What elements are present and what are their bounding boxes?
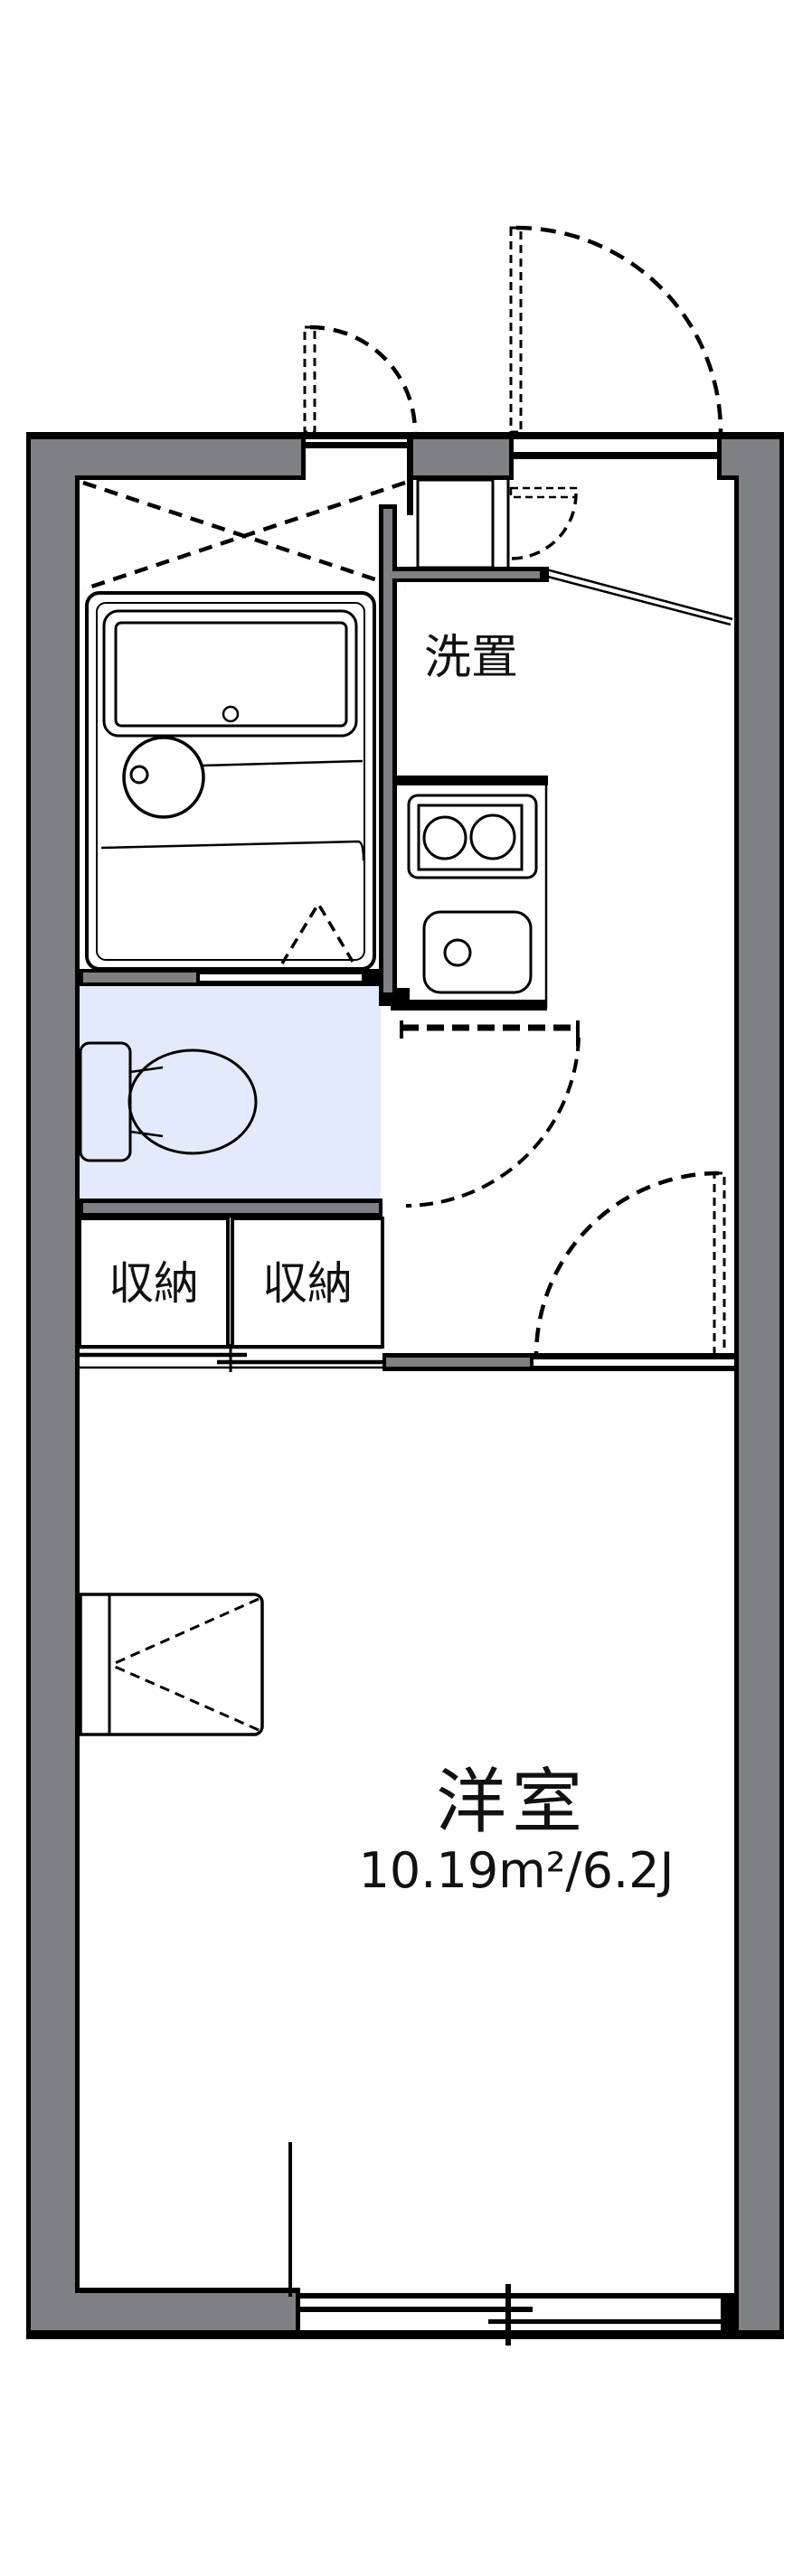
- basin-faucet: [131, 766, 147, 783]
- room-area-label: 10.19m²/6.2J: [359, 1842, 675, 1899]
- bottom-outer-wall-line: [26, 2330, 784, 2339]
- toilet-doorway-line: [197, 981, 365, 986]
- small-door-swing-icon: [305, 327, 415, 432]
- small-door-threshold: [304, 442, 412, 448]
- kitchen-counter-top-edge: [392, 776, 548, 785]
- room-name-label: 洋室: [436, 1762, 588, 1843]
- tub-drain: [223, 707, 238, 721]
- floors: [80, 981, 381, 1207]
- interior-small-door-swing-icon: [511, 488, 576, 559]
- desk-counter-icon: [80, 1594, 262, 1735]
- walls: [26, 432, 784, 2339]
- floor-plan-page: 洗置 収納 収納 洋室 10.19m²/6.2J: [0, 0, 812, 2576]
- storage-label-right: 収納: [262, 1257, 353, 1310]
- bath-unit-outline: [87, 593, 374, 969]
- sliding-window-icon: [288, 2142, 734, 2346]
- room-doorway-line: [532, 1353, 736, 1359]
- burner: [471, 815, 515, 859]
- bathroom-unit: [87, 593, 374, 969]
- hall-door-swing-icon: [401, 1020, 579, 1206]
- burner: [424, 817, 466, 859]
- sink-drain: [445, 940, 470, 965]
- toilet-floor: [80, 981, 381, 1207]
- entrance-pad: [418, 480, 493, 568]
- bathtub-icon: [104, 611, 356, 736]
- floor-plan-drawing: 洗置 収納 収納 洋室 10.19m²/6.2J: [0, 0, 812, 2576]
- closet-sliding-door-icon: [80, 1344, 382, 1372]
- washer-space-label: 洗置: [424, 631, 518, 685]
- toilet-doorway-line: [197, 969, 365, 974]
- washing-machine-space-icon: [83, 483, 405, 589]
- window-center-tick: [505, 2284, 511, 2346]
- entrance-door-threshold: [510, 452, 721, 459]
- room-doorway-line: [532, 1366, 736, 1371]
- storage-label-left: 収納: [109, 1257, 199, 1310]
- folding-bath-door-icon: [282, 904, 353, 964]
- window-right-jamb: [721, 2293, 734, 2339]
- kitchen-sink-icon: [424, 912, 531, 992]
- entrance-step-line: [546, 569, 732, 619]
- room-door-swing-icon: [536, 1173, 724, 1356]
- kitchen-counter-bottom-edge: [391, 1000, 547, 1011]
- entrance-step-line: [544, 576, 731, 625]
- gas-stove-icon: [409, 795, 536, 878]
- washbasin-icon: [101, 738, 364, 860]
- window-left-jamb-line: [288, 2142, 292, 2297]
- kitchen-unit: [391, 776, 548, 1011]
- entrance-door-swing-icon: [511, 228, 721, 432]
